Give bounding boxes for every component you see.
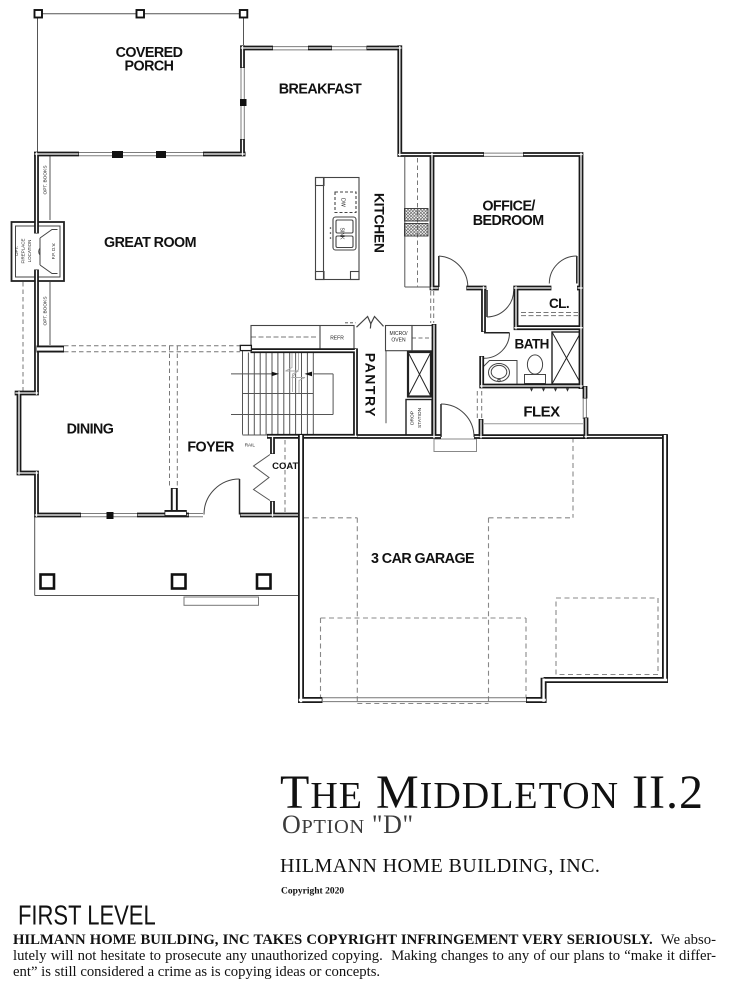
svg-text:BATH: BATH	[515, 337, 549, 352]
svg-text:THE MIDDLETON II.2: THE MIDDLETON II.2	[280, 766, 704, 819]
svg-text:PANTRY: PANTRY	[363, 353, 379, 418]
svg-text:RAIL: RAIL	[245, 443, 256, 448]
svg-text:BREAKFAST: BREAKFAST	[279, 81, 362, 97]
svg-text:FOYER: FOYER	[187, 440, 235, 456]
svg-text:FIRST LEVEL: FIRST LEVEL	[18, 900, 156, 931]
svg-text:BEDROOM: BEDROOM	[473, 213, 544, 229]
svg-text:DROP: DROP	[410, 411, 416, 425]
svg-text:REFR: REFR	[330, 336, 344, 342]
svg-text:DINING: DINING	[67, 422, 114, 438]
svg-text:FIREPLACE: FIREPLACE	[21, 238, 26, 263]
svg-text:OVEN: OVEN	[391, 338, 406, 344]
svg-text:F.P. D.V.: F.P. D.V.	[51, 243, 56, 260]
svg-text:STATION: STATION	[417, 407, 423, 428]
svg-text:DW: DW	[340, 198, 346, 207]
svg-text:CL.: CL.	[549, 296, 569, 311]
svg-text:3 CAR GARAGE: 3 CAR GARAGE	[371, 551, 474, 567]
svg-text:MICRO/: MICRO/	[389, 331, 408, 337]
svg-text:KITCHEN: KITCHEN	[372, 193, 388, 253]
svg-text:PORCH: PORCH	[125, 58, 174, 74]
svg-text:OPT.: OPT.	[14, 246, 19, 256]
svg-text:OPT. BOOKS: OPT. BOOKS	[43, 296, 49, 325]
svg-text:Copyright 2020: Copyright 2020	[281, 887, 344, 897]
svg-text:LOCATION: LOCATION	[27, 240, 32, 263]
svg-text:COAT: COAT	[272, 461, 298, 472]
svg-text:HILMANN HOME BUILDING, INC.: HILMANN HOME BUILDING, INC.	[280, 855, 600, 877]
svg-text:OPT. BOOKS: OPT. BOOKS	[43, 165, 49, 194]
svg-text:SINK: SINK	[339, 227, 345, 240]
svg-text:GREAT ROOM: GREAT ROOM	[104, 235, 196, 251]
svg-text:FLEX: FLEX	[523, 404, 560, 421]
